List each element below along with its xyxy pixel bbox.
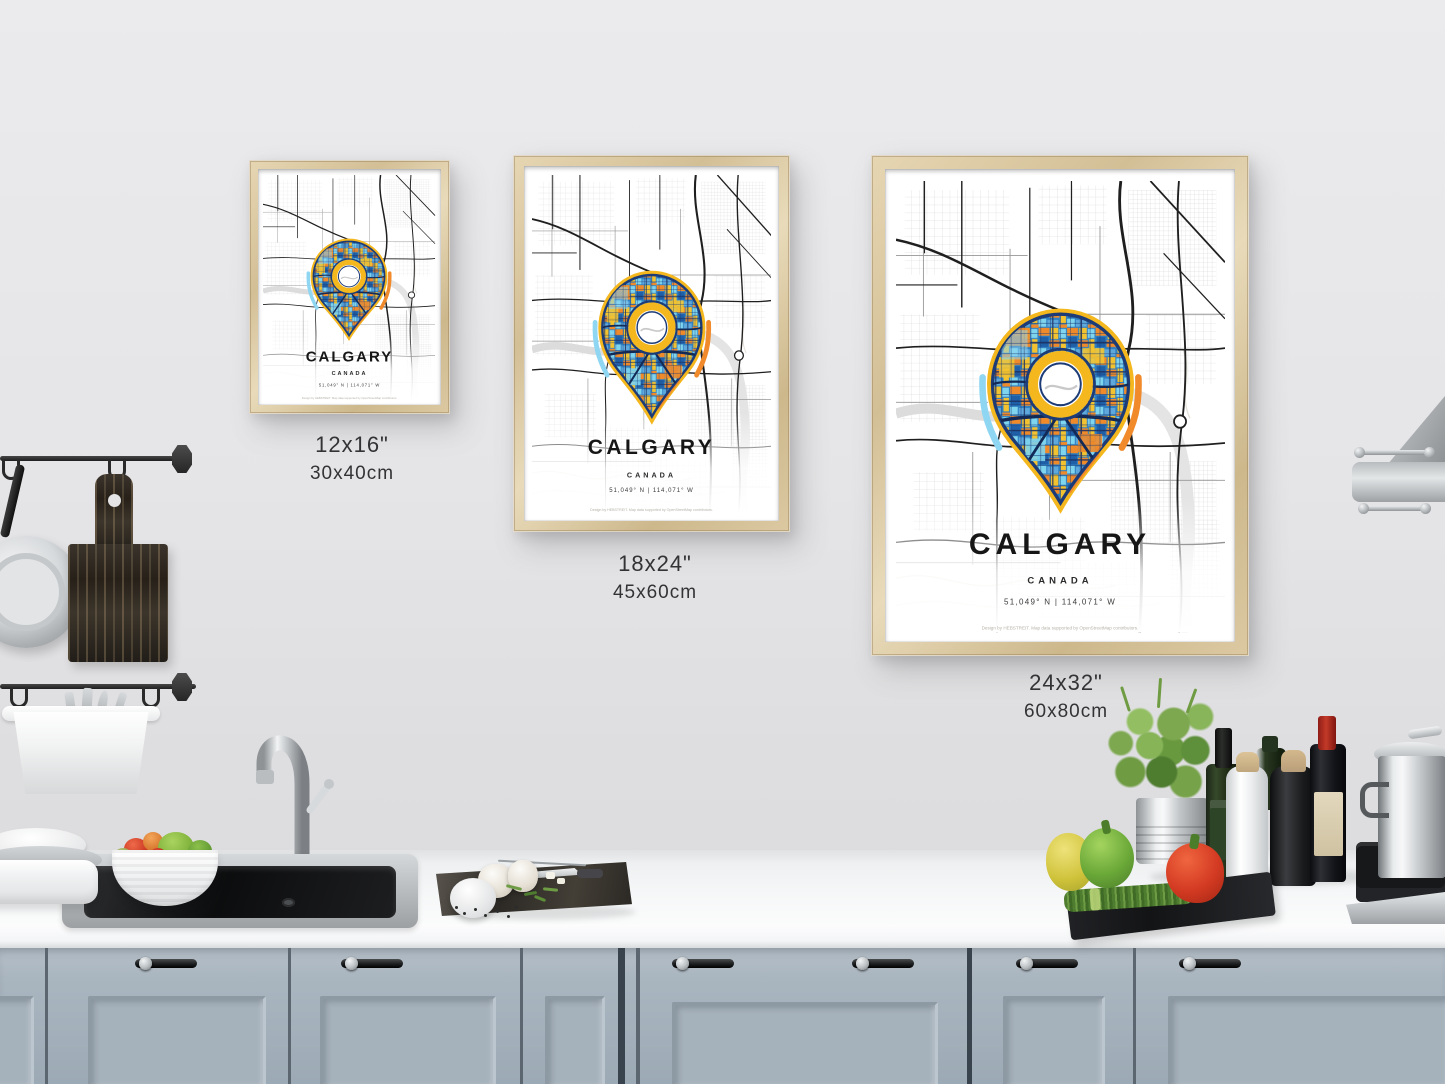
sink-drain <box>282 898 295 907</box>
peppercorn <box>515 906 518 909</box>
poster-credit-label: Design by HEBSTREIT. Map data supported … <box>258 396 441 400</box>
size-cm: 30x40cm <box>262 463 442 485</box>
rail-hook <box>10 687 28 708</box>
grinder-wood-cap <box>1281 750 1306 772</box>
cabinet-handle <box>1020 957 1074 970</box>
wine-cap <box>1318 716 1336 750</box>
plate-stack <box>0 860 98 904</box>
pepper-stem <box>1101 819 1112 834</box>
poster-large-frame: CALGARY CANADA 51,049° N | 114,071° W De… <box>871 155 1249 656</box>
cabinet-handle <box>676 957 730 970</box>
poster-country-label: CANADA <box>258 371 441 377</box>
cabinet-panel <box>320 996 496 1084</box>
cabinet-panel <box>1168 996 1445 1084</box>
wine-label <box>1314 792 1343 856</box>
poster-small-map <box>263 175 435 400</box>
utensil-bucket <box>6 712 156 794</box>
knife-handle <box>577 869 603 878</box>
grinder-wood-cap <box>1236 752 1259 772</box>
city-map-artwork <box>896 181 1225 633</box>
cabinet-panel <box>0 996 34 1084</box>
cabinet-drawer-panel <box>672 1002 938 1084</box>
poster-city-title: CALGARY <box>885 528 1235 562</box>
rail-ball <box>1424 447 1435 458</box>
cabinet-divider <box>1133 948 1136 1084</box>
poster-small-paper: CALGARY CANADA 51,049° N | 114,071° W De… <box>258 169 441 405</box>
small-bowl <box>450 878 496 918</box>
poster-medium-map <box>532 175 772 514</box>
salt-grinder <box>1226 766 1268 882</box>
cabinet-panel <box>545 996 605 1084</box>
size-label-small: 12x16" 30x40cm <box>262 432 442 485</box>
rail-ball <box>1420 503 1431 514</box>
red-pepper <box>1166 843 1224 903</box>
poster-large-paper: CALGARY CANADA 51,049° N | 114,071° W De… <box>885 169 1235 642</box>
poster-coordinates-label: 51,049° N | 114,071° W <box>524 488 779 494</box>
cabinet-divider <box>967 948 972 1084</box>
rail-finial <box>172 445 192 473</box>
rail-hook <box>142 687 160 708</box>
poster-small-frame: CALGARY CANADA 51,049° N | 114,071° W De… <box>249 160 450 414</box>
cabinet-handle <box>139 957 193 970</box>
poster-large-map <box>896 181 1225 633</box>
hanging-cutting-board <box>68 544 168 662</box>
rail-ball <box>1354 447 1365 458</box>
cheese-bit <box>557 878 565 884</box>
cabinet-divider <box>520 948 523 1084</box>
range-hood-rail-bottom <box>1364 506 1426 511</box>
bottle-neck-cap <box>1215 728 1232 768</box>
poster-country-label: CANADA <box>524 470 779 479</box>
peppercorn <box>474 908 477 911</box>
faucet <box>250 688 334 880</box>
poster-medium-frame: CALGARY CANADA 51,049° N | 114,071° W De… <box>513 155 790 532</box>
pot-lid-knob <box>1408 726 1443 740</box>
bottle-cap <box>1262 736 1278 752</box>
range-hood-band <box>1352 462 1445 502</box>
cabinet-divider <box>45 948 48 1084</box>
cabinet-panel <box>88 996 266 1084</box>
city-map-artwork <box>532 175 772 514</box>
peppercorn <box>484 914 487 917</box>
range-hood-rail-top <box>1360 450 1430 455</box>
city-map-artwork <box>263 175 435 400</box>
poster-city-title: CALGARY <box>258 348 441 365</box>
cabinet-handle <box>1183 957 1237 970</box>
size-cm: 45x60cm <box>565 582 745 604</box>
peppercorn <box>496 910 499 913</box>
poster-credit-label: Design by HEBSTREIT. Map data supported … <box>885 625 1235 630</box>
peppercorn <box>455 906 458 909</box>
rail-finial <box>172 673 192 701</box>
size-inches: 18x24" <box>565 551 745 577</box>
cabinet-handle <box>345 957 399 970</box>
cheese-bit <box>546 872 555 879</box>
poster-medium-paper: CALGARY CANADA 51,049° N | 114,071° W De… <box>524 166 779 521</box>
poster-coordinates-label: 51,049° N | 114,071° W <box>885 597 1235 606</box>
green-pepper <box>1080 828 1134 888</box>
pot-handle <box>1360 782 1389 818</box>
cabinet-panel <box>1003 996 1105 1084</box>
poster-city-title: CALGARY <box>524 436 779 460</box>
size-label-medium: 18x24" 45x60cm <box>565 551 745 604</box>
peppercorn <box>507 915 510 918</box>
kitchen-mockup-scene: CALGARY CANADA 51,049° N | 114,071° W De… <box>0 0 1445 1084</box>
peppercorn <box>463 912 466 915</box>
cabinet-handle <box>856 957 910 970</box>
size-inches: 12x16" <box>262 432 442 458</box>
cutting-board-hole <box>108 494 121 507</box>
rail-ball <box>1358 503 1369 514</box>
wall-rail-top <box>0 456 192 461</box>
cabinet-divider <box>288 948 291 1084</box>
cabinet-divider <box>636 948 640 1084</box>
poster-country-label: CANADA <box>885 575 1235 586</box>
wall-rail-bottom <box>0 684 196 689</box>
cabinet-divider <box>618 948 625 1084</box>
poster-credit-label: Design by HEBSTREIT. Map data supported … <box>524 508 779 512</box>
poster-coordinates-label: 51,049° N | 114,071° W <box>258 382 441 387</box>
